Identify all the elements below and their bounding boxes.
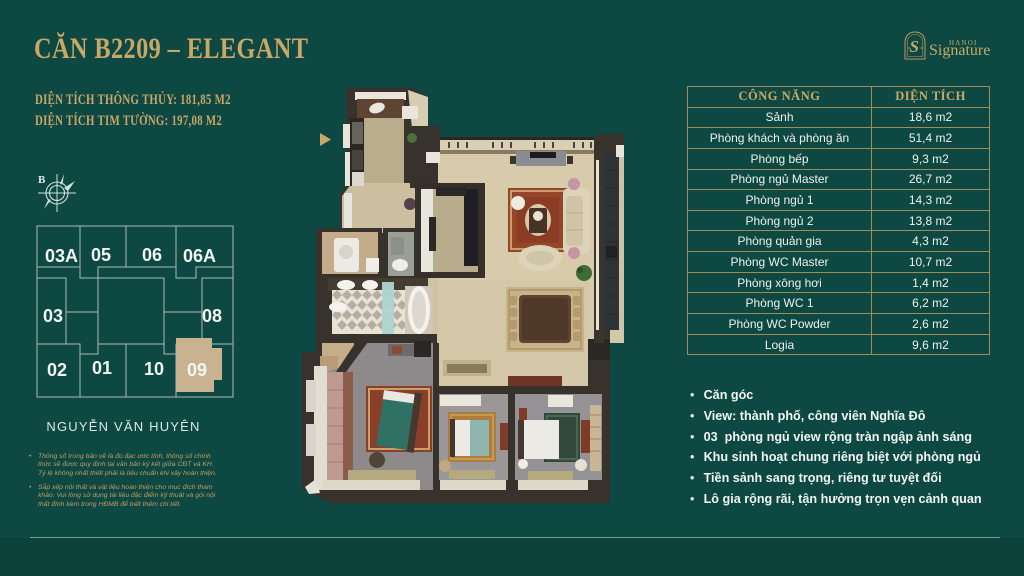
svg-text:03: 03: [43, 306, 63, 326]
svg-text:03A: 03A: [45, 246, 78, 266]
svg-text:01: 01: [92, 358, 112, 378]
svg-text:06A: 06A: [183, 246, 216, 266]
svg-text:05: 05: [91, 245, 111, 265]
svg-text:02: 02: [47, 360, 67, 380]
svg-text:09: 09: [187, 360, 207, 380]
svg-text:S: S: [910, 37, 919, 56]
svg-text:B: B: [38, 174, 46, 186]
svg-text:06: 06: [142, 245, 162, 265]
svg-text:08: 08: [202, 306, 222, 326]
svg-text:10: 10: [144, 359, 164, 379]
